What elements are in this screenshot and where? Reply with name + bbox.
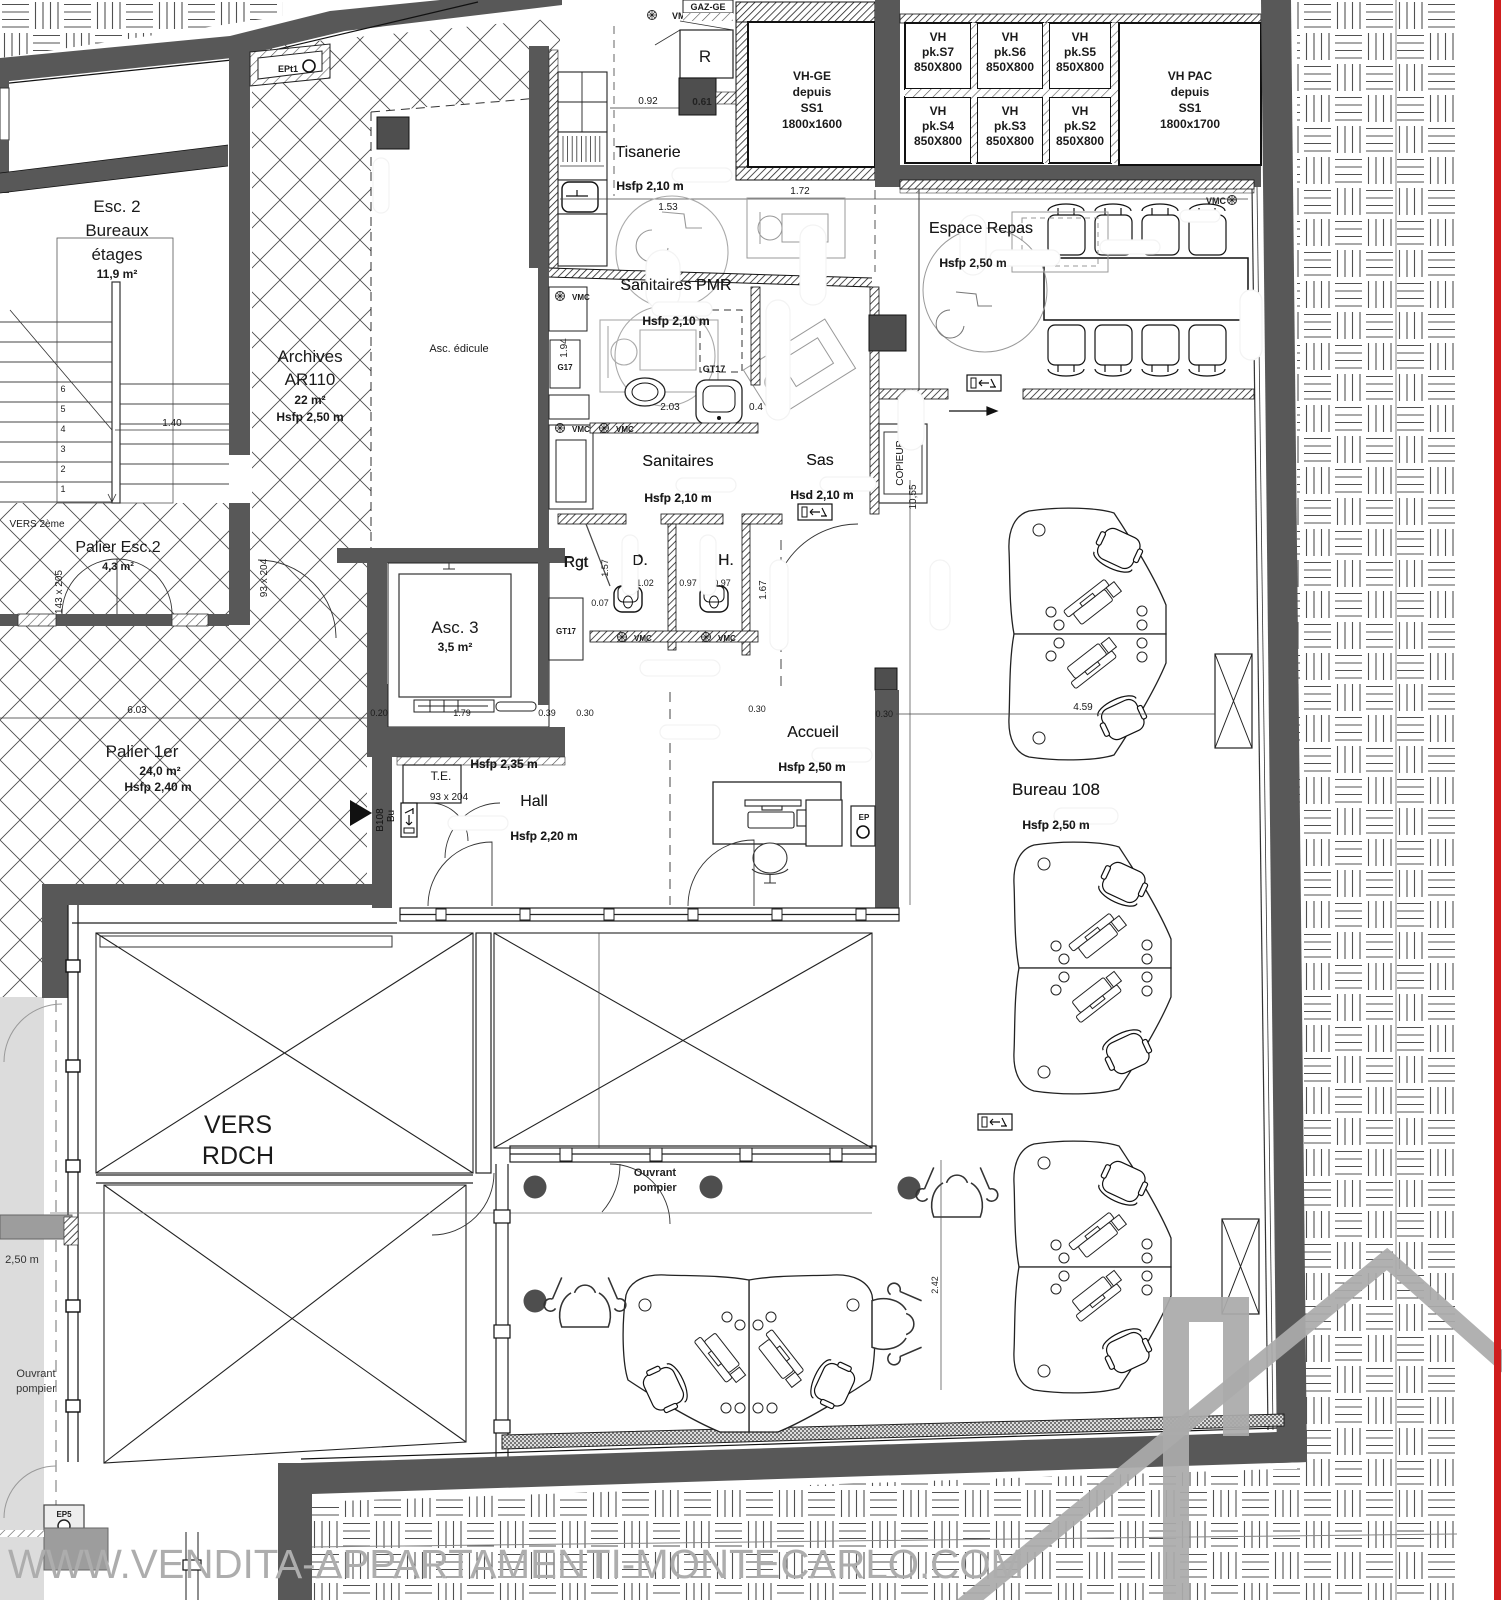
svg-text:Hsfp 2,10 m: Hsfp 2,10 m [642, 314, 709, 328]
svg-text:EP: EP [859, 813, 870, 822]
svg-text:0.30: 0.30 [748, 704, 766, 714]
svg-text:VH: VH [930, 30, 947, 44]
svg-text:850X800: 850X800 [1056, 60, 1104, 74]
svg-text:VERS 2ème: VERS 2ème [9, 519, 64, 530]
svg-text:pompier: pompier [633, 1182, 677, 1194]
svg-text:1.79: 1.79 [453, 708, 471, 718]
svg-text:Ouvrant: Ouvrant [634, 1167, 677, 1179]
svg-text:Sas: Sas [806, 452, 834, 469]
svg-text:Hsfp 2,50 m: Hsfp 2,50 m [1022, 818, 1089, 832]
svg-text:Hsfp 2,35 m: Hsfp 2,35 m [470, 757, 537, 771]
svg-text:VMC: VMC [572, 293, 590, 302]
svg-text:VH: VH [1002, 104, 1019, 118]
svg-text:VH-GE: VH-GE [793, 69, 831, 83]
svg-text:Hsfp 2,20 m: Hsfp 2,20 m [510, 829, 577, 843]
svg-text:1800x1600: 1800x1600 [782, 117, 842, 131]
svg-text:1.57: 1.57 [600, 559, 610, 577]
svg-text:VMC: VMC [616, 425, 634, 434]
svg-text:0.92: 0.92 [638, 96, 658, 107]
svg-text:1.72: 1.72 [790, 186, 810, 197]
svg-text:GAZ-GE: GAZ-GE [691, 2, 726, 12]
svg-text:EPt1: EPt1 [278, 64, 298, 74]
svg-text:1: 1 [60, 484, 65, 494]
svg-text:2,50 m: 2,50 m [5, 1254, 39, 1266]
svg-text:850X800: 850X800 [1056, 134, 1104, 148]
svg-text:0.4: 0.4 [749, 402, 763, 413]
svg-text:D.: D. [633, 552, 648, 569]
svg-text:0.97: 0.97 [679, 578, 697, 588]
svg-text:GT17: GT17 [703, 364, 726, 374]
svg-text:pk.S7: pk.S7 [922, 45, 954, 59]
svg-text:pk.S4: pk.S4 [922, 119, 954, 133]
svg-text:SS1: SS1 [1179, 101, 1202, 115]
svg-text:11,9 m²: 11,9 m² [97, 267, 138, 281]
svg-text:4.59: 4.59 [1073, 702, 1093, 713]
svg-text:GT17: GT17 [556, 627, 577, 636]
svg-text:pk.S5: pk.S5 [1064, 45, 1096, 59]
svg-text:0.61: 0.61 [692, 97, 712, 108]
svg-text:T.E.: T.E. [431, 769, 452, 783]
svg-text:93 x 204: 93 x 204 [430, 792, 469, 803]
svg-text:Hall: Hall [520, 793, 548, 810]
svg-text:Hsfp 2,10 m: Hsfp 2,10 m [644, 491, 711, 505]
svg-text:22 m²: 22 m² [294, 393, 325, 407]
svg-text:VH: VH [1072, 104, 1089, 118]
svg-text:850X800: 850X800 [914, 134, 962, 148]
svg-text:SS1: SS1 [801, 101, 824, 115]
svg-text:Sanitaires: Sanitaires [642, 453, 713, 470]
svg-text:RDCH: RDCH [202, 1142, 274, 1170]
svg-text:Bu: Bu [386, 810, 397, 822]
svg-text:2.42: 2.42 [930, 1276, 940, 1294]
svg-text:1.94: 1.94 [559, 338, 570, 358]
svg-text:4,3 m²: 4,3 m² [102, 561, 134, 573]
svg-text:5: 5 [60, 404, 65, 414]
svg-text:VMC: VMC [634, 634, 652, 643]
svg-text:0.07: 0.07 [591, 598, 609, 608]
svg-text:Rgt: Rgt [564, 554, 588, 571]
svg-text:Bureau 108: Bureau 108 [1012, 780, 1100, 799]
svg-text:850X800: 850X800 [986, 134, 1034, 148]
svg-text:pk.S6: pk.S6 [994, 45, 1026, 59]
svg-text:Accueil: Accueil [787, 724, 839, 741]
svg-text:2: 2 [60, 464, 65, 474]
svg-text:0.39: 0.39 [538, 708, 556, 718]
svg-text:Asc. édicule: Asc. édicule [429, 343, 488, 355]
svg-text:Asc. 3: Asc. 3 [431, 618, 478, 637]
svg-text:0.30: 0.30 [576, 708, 594, 718]
svg-text:AR110: AR110 [285, 370, 336, 389]
svg-text:étages: étages [91, 245, 142, 264]
svg-text:Palier Esc.2: Palier Esc.2 [75, 539, 160, 556]
svg-text:R: R [699, 47, 711, 66]
svg-text:VH PAC: VH PAC [1168, 69, 1213, 83]
svg-text:Ouvrant: Ouvrant [16, 1368, 55, 1380]
svg-text:Hsfp 2,50 m: Hsfp 2,50 m [276, 410, 343, 424]
svg-text:0.30: 0.30 [875, 709, 893, 719]
svg-text:93 x 204: 93 x 204 [259, 558, 270, 597]
svg-text:1.40: 1.40 [162, 418, 182, 429]
svg-text:VERS: VERS [204, 1111, 272, 1139]
svg-text:Hsfp 2,50 m: Hsfp 2,50 m [939, 256, 1006, 270]
svg-text:pk.S3: pk.S3 [994, 119, 1026, 133]
svg-text:WWW.VENDITA-APPARTAMENTI-MONTE: WWW.VENDITA-APPARTAMENTI-MONTECARLO.COM [8, 1541, 1024, 1587]
svg-text:Hsfp 2,40 m: Hsfp 2,40 m [124, 780, 191, 794]
svg-text:6: 6 [60, 384, 65, 394]
svg-text:143 x 205: 143 x 205 [54, 570, 65, 614]
svg-text:1.02: 1.02 [636, 578, 654, 588]
svg-text:850X800: 850X800 [914, 60, 962, 74]
svg-text:pk.S2: pk.S2 [1064, 119, 1096, 133]
svg-text:2.03: 2.03 [660, 402, 680, 413]
svg-text:1.53: 1.53 [658, 202, 678, 213]
svg-text:Hsfp 2,50 m: Hsfp 2,50 m [778, 760, 845, 774]
svg-text:24,0 m²: 24,0 m² [139, 764, 180, 778]
svg-text:Palier 1er: Palier 1er [106, 742, 179, 761]
svg-text:B108: B108 [375, 808, 386, 832]
svg-text:4: 4 [60, 424, 65, 434]
svg-text:VH: VH [1002, 30, 1019, 44]
svg-text:Tisanerie: Tisanerie [615, 144, 680, 161]
svg-text:Bureaux: Bureaux [85, 221, 149, 240]
svg-text:VMC: VMC [718, 634, 736, 643]
svg-text:Archives: Archives [277, 347, 342, 366]
svg-text:VH: VH [930, 104, 947, 118]
svg-text:850X800: 850X800 [986, 60, 1034, 74]
svg-text:depuis: depuis [1171, 85, 1210, 99]
svg-text:Hsd 2,10 m: Hsd 2,10 m [790, 488, 853, 502]
svg-text:0.20: 0.20 [370, 708, 388, 718]
svg-text:3: 3 [60, 444, 65, 454]
svg-text:Espace Repas: Espace Repas [929, 220, 1033, 237]
svg-text:depuis: depuis [793, 85, 832, 99]
svg-text:pompier: pompier [16, 1383, 56, 1395]
svg-text:1.67: 1.67 [758, 580, 769, 600]
svg-text:Hsfp 2,10 m: Hsfp 2,10 m [616, 179, 683, 193]
svg-text:VMC: VMC [1206, 196, 1227, 206]
svg-text:VMC: VMC [572, 425, 590, 434]
svg-text:Sanitaires PMR: Sanitaires PMR [620, 277, 731, 294]
svg-text:H.: H. [719, 552, 734, 569]
svg-text:1800x1700: 1800x1700 [1160, 117, 1220, 131]
svg-text:EP5: EP5 [56, 1510, 72, 1519]
svg-text:6.03: 6.03 [127, 705, 147, 716]
svg-text:G17: G17 [557, 363, 573, 372]
svg-text:VH: VH [1072, 30, 1089, 44]
svg-text:Esc. 2: Esc. 2 [93, 197, 140, 216]
svg-text:3,5 m²: 3,5 m² [438, 640, 473, 654]
